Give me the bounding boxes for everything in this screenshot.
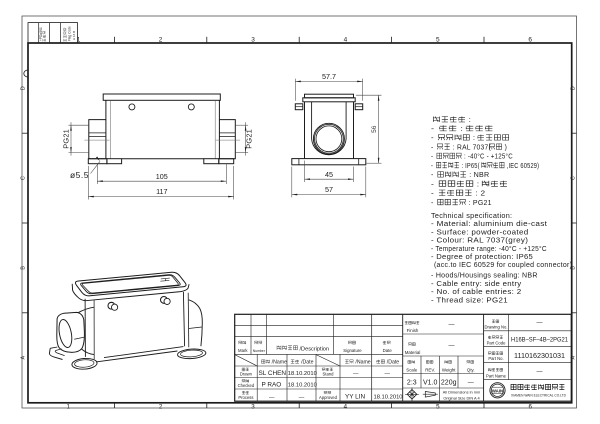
svg-text:/Date: /Date (387, 359, 400, 365)
svg-text:Part No.: Part No. (488, 356, 503, 361)
svg-text:WAIN: WAIN (492, 388, 503, 393)
svg-text:-: - (431, 153, 433, 160)
svg-text:: RAL 7037(: : RAL 7037( (453, 144, 492, 151)
svg-text:1: 1 (66, 404, 70, 411)
svg-text:Approved: Approved (319, 395, 338, 400)
svg-text:220g: 220g (441, 379, 457, 386)
svg-text:Drawing No.: Drawing No. (484, 325, 507, 330)
svg-text:ø5.5: ø5.5 (70, 170, 89, 180)
svg-text:SL CHEN: SL CHEN (259, 370, 287, 377)
svg-text:H 16 B: H 16 B (72, 31, 76, 40)
svg-text:Date: Date (383, 348, 393, 353)
svg-text:: IP65(: : IP65( (462, 162, 481, 170)
svg-text:Original Size DIN A 4: Original Size DIN A 4 (443, 395, 480, 400)
svg-text:/Name: /Name (355, 359, 370, 365)
svg-text:Number: Number (253, 349, 266, 353)
svg-text:-: - (431, 125, 434, 133)
svg-text:5: 5 (436, 37, 440, 44)
svg-text:/Name: /Name (272, 359, 287, 365)
svg-text:D: D (570, 86, 576, 90)
svg-text:—: — (299, 394, 305, 400)
svg-text:18.10.2010: 18.10.2010 (288, 371, 317, 377)
svg-text:(acc.to IEC 60529 for coup: (acc.to IEC 60529 for coupled connector) (434, 262, 572, 269)
svg-text:: NBR: : NBR (469, 172, 489, 179)
svg-text:-: - (431, 200, 434, 207)
svg-text:57.7: 57.7 (322, 72, 336, 81)
svg-text::: : (477, 180, 480, 188)
svg-text:,IEC 60529): ,IEC 60529) (507, 162, 540, 170)
svg-text:6: 6 (528, 404, 532, 411)
svg-text:C: C (21, 176, 27, 180)
svg-text:/Description: /Description (300, 346, 330, 352)
svg-text::: : (469, 115, 472, 123)
svg-text:- Colour: RAL 7037(grey): - Colour: RAL 7037(grey) (431, 236, 528, 244)
svg-text::: : (473, 133, 475, 141)
svg-text:6: 6 (528, 37, 532, 44)
svg-text:18.10.2010: 18.10.2010 (288, 382, 317, 388)
svg-text:Technical specification:: Technical specification: (431, 211, 512, 220)
svg-text:/Date: /Date (301, 359, 314, 365)
svg-text:A: A (21, 356, 27, 360)
svg-text:3: 3 (251, 37, 255, 44)
svg-text:Signature: Signature (343, 348, 362, 353)
svg-text:—: — (449, 344, 455, 350)
svg-text:4: 4 (344, 404, 348, 411)
svg-text:- Cable entry: side entry: - Cable entry: side entry (431, 279, 522, 288)
svg-text:Material: Material (405, 350, 421, 355)
svg-text:2: 2 (159, 404, 163, 411)
svg-text:Qty.: Qty. (467, 367, 475, 372)
svg-text:REV.: REV. (425, 367, 435, 372)
svg-text:-: - (431, 189, 434, 197)
svg-text:—: — (449, 322, 455, 328)
svg-text:All Dimensions in mm: All Dimensions in mm (443, 390, 480, 395)
svg-text:- Surface: powder-coated: - Surface: powder-coated (431, 228, 528, 236)
svg-text:Checked: Checked (238, 383, 255, 388)
svg-text:2: 2 (159, 37, 163, 44)
svg-text:—: — (537, 321, 543, 327)
svg-text:2:3: 2:3 (407, 379, 417, 386)
svg-text:B: B (21, 266, 27, 270)
svg-text:3: 3 (251, 404, 255, 411)
svg-text:D: D (21, 86, 27, 90)
svg-text:Stand: Stand (323, 371, 335, 376)
svg-text:—: — (353, 370, 359, 376)
svg-text:Process: Process (238, 395, 253, 400)
svg-text:- Material: aluminium die-c: - Material: aluminium die-cast (431, 220, 548, 228)
svg-text:: -40°C - +125°C: : -40°C - +125°C (464, 152, 513, 160)
svg-text:: PG21: : PG21 (469, 200, 492, 207)
svg-text:C: C (570, 176, 576, 180)
svg-text:-: - (431, 144, 433, 151)
svg-text:Part Name: Part Name (486, 373, 507, 378)
svg-text:Weight: Weight (442, 367, 456, 372)
svg-text:56: 56 (371, 125, 378, 133)
svg-text:18.10.2010: 18.10.2010 (374, 394, 403, 400)
svg-text:PG21: PG21 (61, 129, 70, 149)
svg-text:-: - (431, 180, 434, 188)
svg-text:H16B–SF–4B–2PG21: H16B–SF–4B–2PG21 (511, 337, 568, 344)
svg-text:—: — (384, 370, 390, 376)
svg-text:—: — (468, 380, 474, 386)
svg-text:XIAMEN WAIN ELECTRICAL CO.LTD: XIAMEN WAIN ELECTRICAL CO.LTD (511, 393, 567, 397)
svg-text:- No. of cable entries: 2: - No. of cable entries: 2 (431, 288, 521, 296)
svg-text:Part Code: Part Code (487, 340, 507, 345)
svg-text:Scale: Scale (406, 367, 418, 372)
svg-text:-: - (431, 172, 434, 179)
svg-text::: : (460, 125, 463, 133)
svg-text:5: 5 (436, 404, 440, 411)
svg-text:Finish: Finish (407, 328, 419, 333)
svg-text:1110162301031: 1110162301031 (514, 351, 565, 360)
svg-text:YY LIN: YY LIN (345, 393, 366, 400)
svg-text:57: 57 (325, 185, 333, 194)
svg-text:Drawn: Drawn (240, 371, 253, 376)
svg-text:+PDa/W1: +PDa/W1 (39, 27, 43, 41)
svg-text:-: - (431, 162, 433, 170)
svg-text:105: 105 (156, 172, 168, 181)
svg-text:Mark: Mark (238, 348, 248, 353)
svg-text:4: 4 (344, 37, 348, 44)
svg-text:117: 117 (156, 187, 167, 196)
svg-text:: 2: : 2 (475, 189, 485, 197)
svg-text:—: — (537, 370, 543, 376)
svg-text:- Degree of protection: IP: - Degree of protection: IP65 (431, 252, 533, 261)
svg-text:): ) (505, 144, 507, 151)
svg-text:45: 45 (325, 170, 333, 179)
svg-text:-: - (431, 133, 434, 141)
svg-text:PG21: PG21 (245, 129, 254, 149)
svg-text:V1.0: V1.0 (423, 379, 438, 386)
svg-text:—: — (269, 394, 275, 400)
svg-text:P RAO: P RAO (262, 381, 282, 388)
svg-text:- Thread size: PG21: - Thread size: PG21 (431, 296, 508, 304)
